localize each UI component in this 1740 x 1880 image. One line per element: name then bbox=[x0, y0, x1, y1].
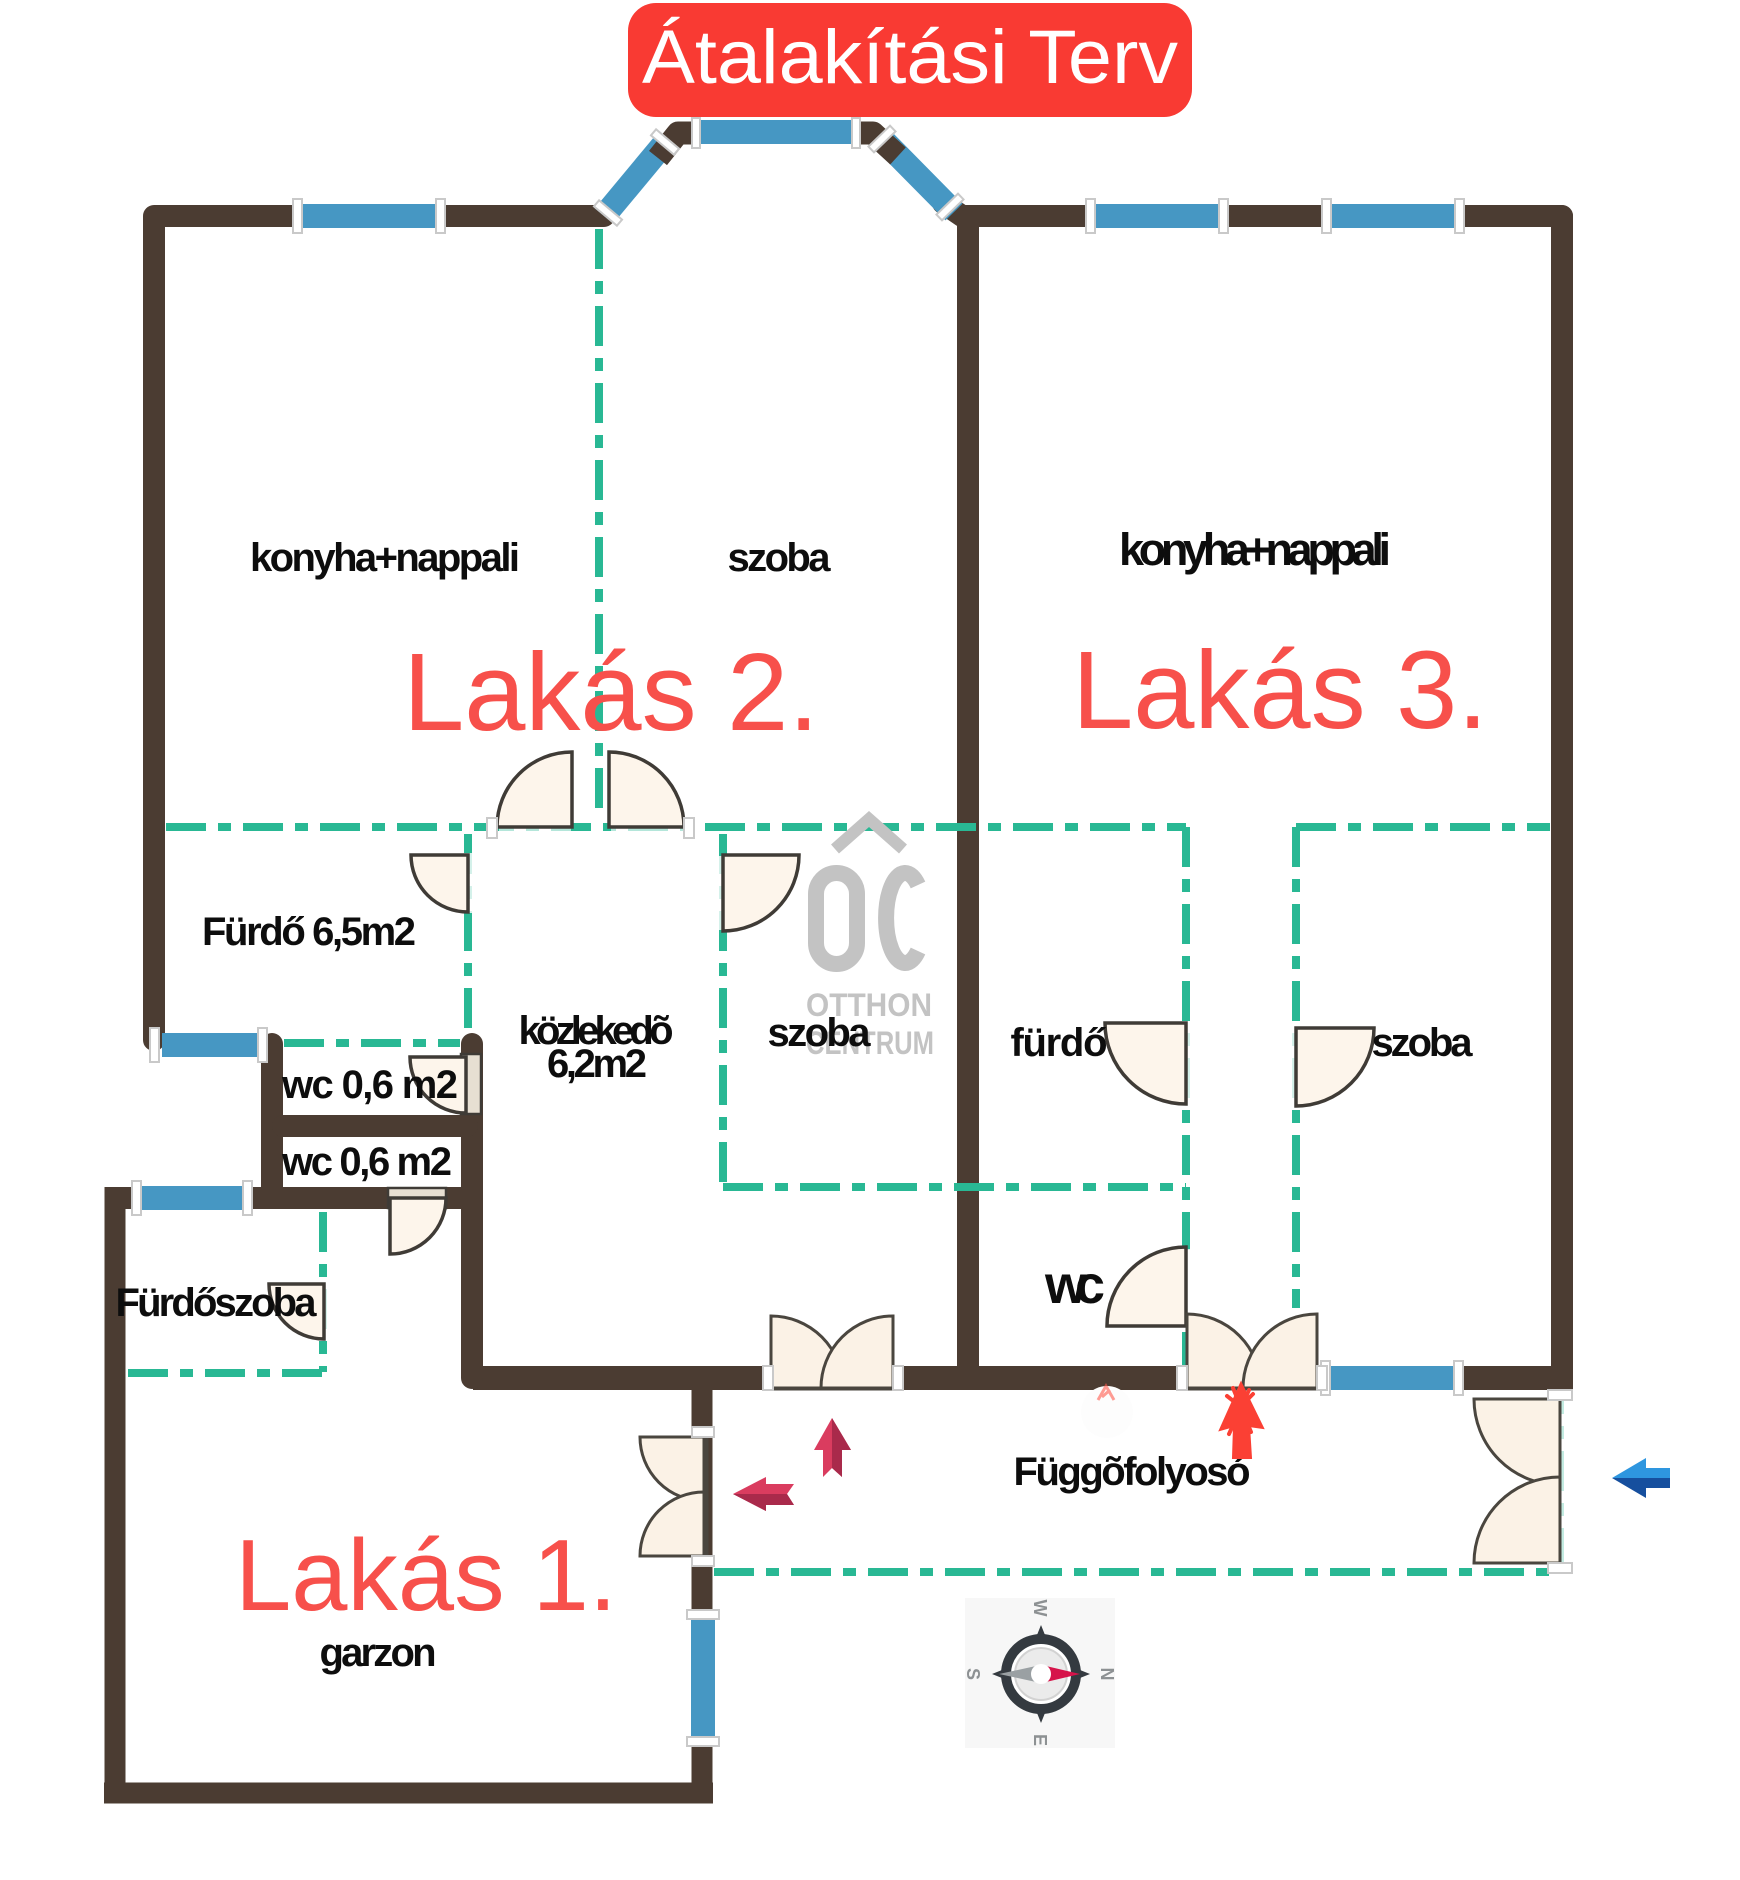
svg-text:wc 0,6 m2: wc 0,6 m2 bbox=[281, 1140, 452, 1184]
svg-text:fürdő: fürdő bbox=[1011, 1021, 1108, 1065]
svg-text:szoba: szoba bbox=[728, 536, 832, 580]
svg-text:szoba: szoba bbox=[768, 1011, 872, 1055]
svg-text:Lakás 1.: Lakás 1. bbox=[235, 1520, 617, 1632]
svg-text:wc: wc bbox=[1044, 1255, 1105, 1315]
svg-text:wc 0,6 m2: wc 0,6 m2 bbox=[281, 1063, 458, 1107]
svg-text:konyha+nappali: konyha+nappali bbox=[1119, 524, 1391, 575]
svg-text:S: S bbox=[963, 1668, 983, 1680]
svg-text:6,2m2: 6,2m2 bbox=[547, 1042, 647, 1086]
svg-text:W: W bbox=[1030, 1600, 1050, 1617]
svg-text:Függõfolyosó: Függõfolyosó bbox=[1014, 1450, 1251, 1494]
svg-text:Fürdőszoba: Fürdőszoba bbox=[116, 1281, 318, 1325]
svg-text:garzon: garzon bbox=[320, 1631, 437, 1675]
svg-text:szoba: szoba bbox=[1372, 1021, 1474, 1065]
svg-text:Lakás 2.: Lakás 2. bbox=[403, 631, 819, 754]
svg-text:Fürdő 6,5m2: Fürdő 6,5m2 bbox=[202, 910, 416, 954]
svg-text:E: E bbox=[1030, 1734, 1050, 1746]
svg-text:Lakás 3.: Lakás 3. bbox=[1072, 629, 1488, 752]
svg-text:konyha+nappali: konyha+nappali bbox=[250, 536, 520, 580]
svg-text:N: N bbox=[1097, 1668, 1117, 1681]
svg-text:Átalakítási Terv: Átalakítási Terv bbox=[642, 15, 1178, 100]
